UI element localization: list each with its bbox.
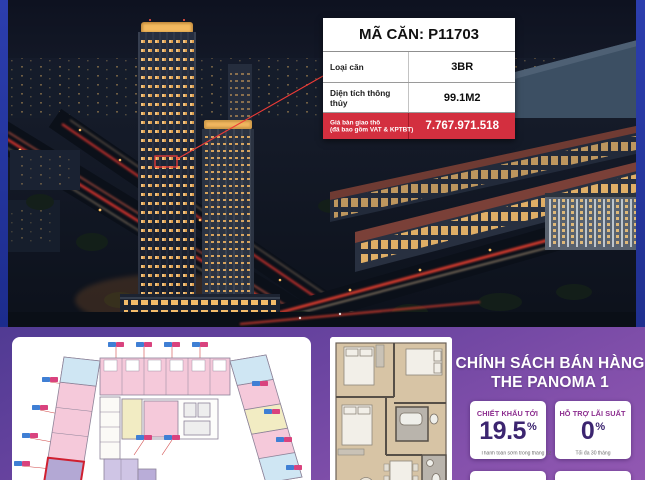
aerial-night-photo: MÃ CĂN: P11703 Loại căn 3BR Diện tích th… — [0, 0, 645, 327]
discount-value: 19.5 — [479, 417, 526, 445]
floor-plan — [12, 337, 311, 480]
price-value: 7.767.971.518 — [409, 120, 515, 132]
interest-card-caption: Tối đa 30 tháng — [565, 451, 620, 456]
interest-value: 0 — [581, 417, 594, 445]
unit-info-table: MÃ CĂN: P11703 Loại căn 3BR Diện tích th… — [323, 18, 515, 139]
discount-card: CHIẾT KHẤU TỚI 19.5% Thanh toán sớm tron… — [470, 401, 546, 459]
policy-cards-row2 — [455, 471, 645, 480]
row-label: Diện tích thông thủy — [323, 83, 409, 112]
price-label-line2: (đã bao gồm VAT & KPTBT) — [330, 126, 413, 133]
row-value: 3BR — [409, 61, 515, 73]
photo-frame-left — [0, 0, 8, 327]
policy-card-partial — [555, 471, 631, 480]
policy-title: CHÍNH SÁCH BÁN HÀNG THE PANOMA 1 — [455, 354, 645, 392]
policy-cards: CHIẾT KHẤU TỚI 19.5% Thanh toán sớm tron… — [455, 401, 645, 459]
discount-card-caption: Thanh toán sớm trong tháng 12 — [480, 451, 535, 456]
real-estate-flyer: MÃ CĂN: P11703 Loại căn 3BR Diện tích th… — [0, 0, 645, 480]
interest-card: HỖ TRỢ LÃI SUẤT 0% Tối đa 30 tháng — [555, 401, 631, 459]
row-label: Loại căn — [323, 52, 409, 82]
policy-title-line1: CHÍNH SÁCH BÁN HÀNG — [455, 354, 645, 373]
sales-policy: CHÍNH SÁCH BÁN HÀNG THE PANOMA 1 CHIẾT K… — [455, 340, 645, 480]
price-label-line1: Giá bàn giao thô — [330, 119, 413, 126]
table-row-unit-type: Loại căn 3BR — [323, 52, 515, 83]
apartment-unit-plan — [330, 337, 452, 480]
secondary-tower — [202, 120, 254, 302]
photo-frame-right — [636, 0, 645, 327]
unit-plan-panel — [330, 337, 452, 480]
interest-card-value: 0% — [555, 419, 631, 449]
dining-set — [384, 461, 418, 480]
highlighted-unit — [44, 458, 84, 480]
percent-sign: % — [527, 421, 537, 433]
table-row-price: Giá bàn giao thô (đã bao gồm VAT & KPTBT… — [323, 113, 515, 139]
policy-title-line2: THE PANOMA 1 — [455, 373, 645, 392]
discount-card-value: 19.5% — [470, 419, 546, 449]
floor-plan-panel — [12, 337, 311, 480]
policy-card-partial — [470, 471, 546, 480]
unit-code-header: MÃ CĂN: P11703 — [323, 18, 515, 52]
price-label: Giá bàn giao thô (đã bao gồm VAT & KPTBT… — [323, 113, 409, 139]
percent-sign: % — [595, 421, 605, 433]
table-row-area: Diện tích thông thủy 99.1M2 — [323, 83, 515, 113]
row-value: 99.1M2 — [409, 92, 515, 104]
midrise-block — [545, 193, 641, 250]
